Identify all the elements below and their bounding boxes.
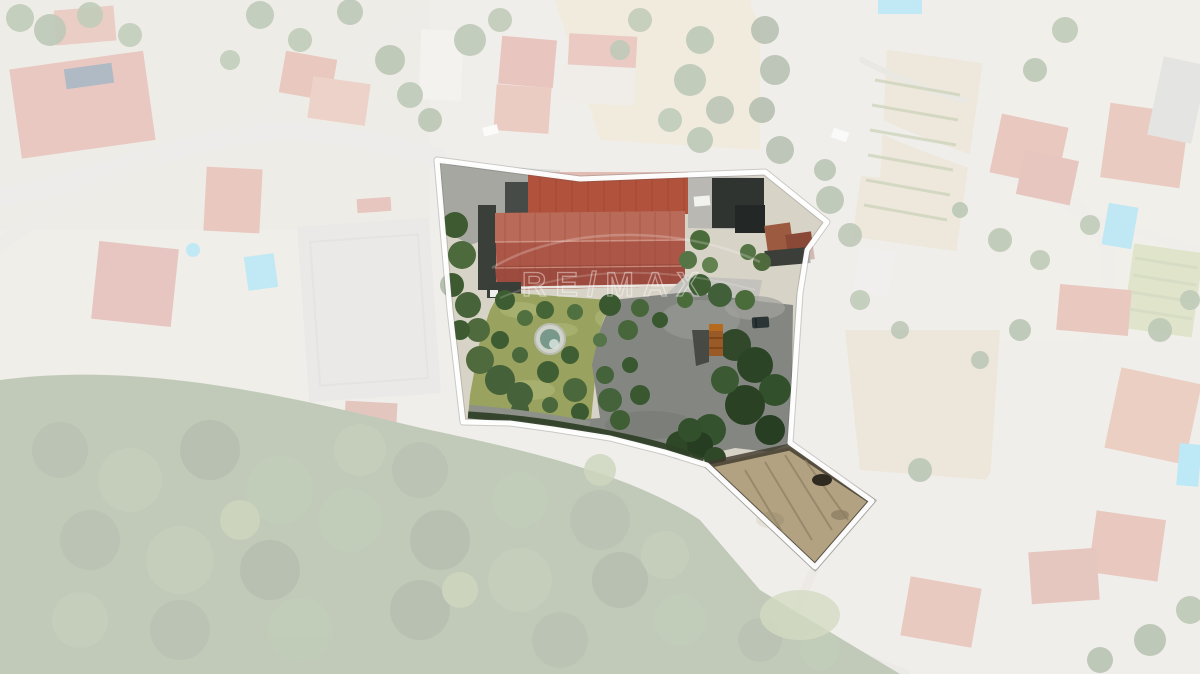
garden-pond (535, 324, 565, 354)
watermark-text: RE/MAX (522, 266, 708, 304)
white-van (694, 195, 711, 206)
parked-dark-car (752, 316, 770, 328)
aerial-photo-canvas: RE/MAX (0, 0, 1200, 674)
aerial-property-screenshot: RE/MAX (0, 0, 1200, 674)
